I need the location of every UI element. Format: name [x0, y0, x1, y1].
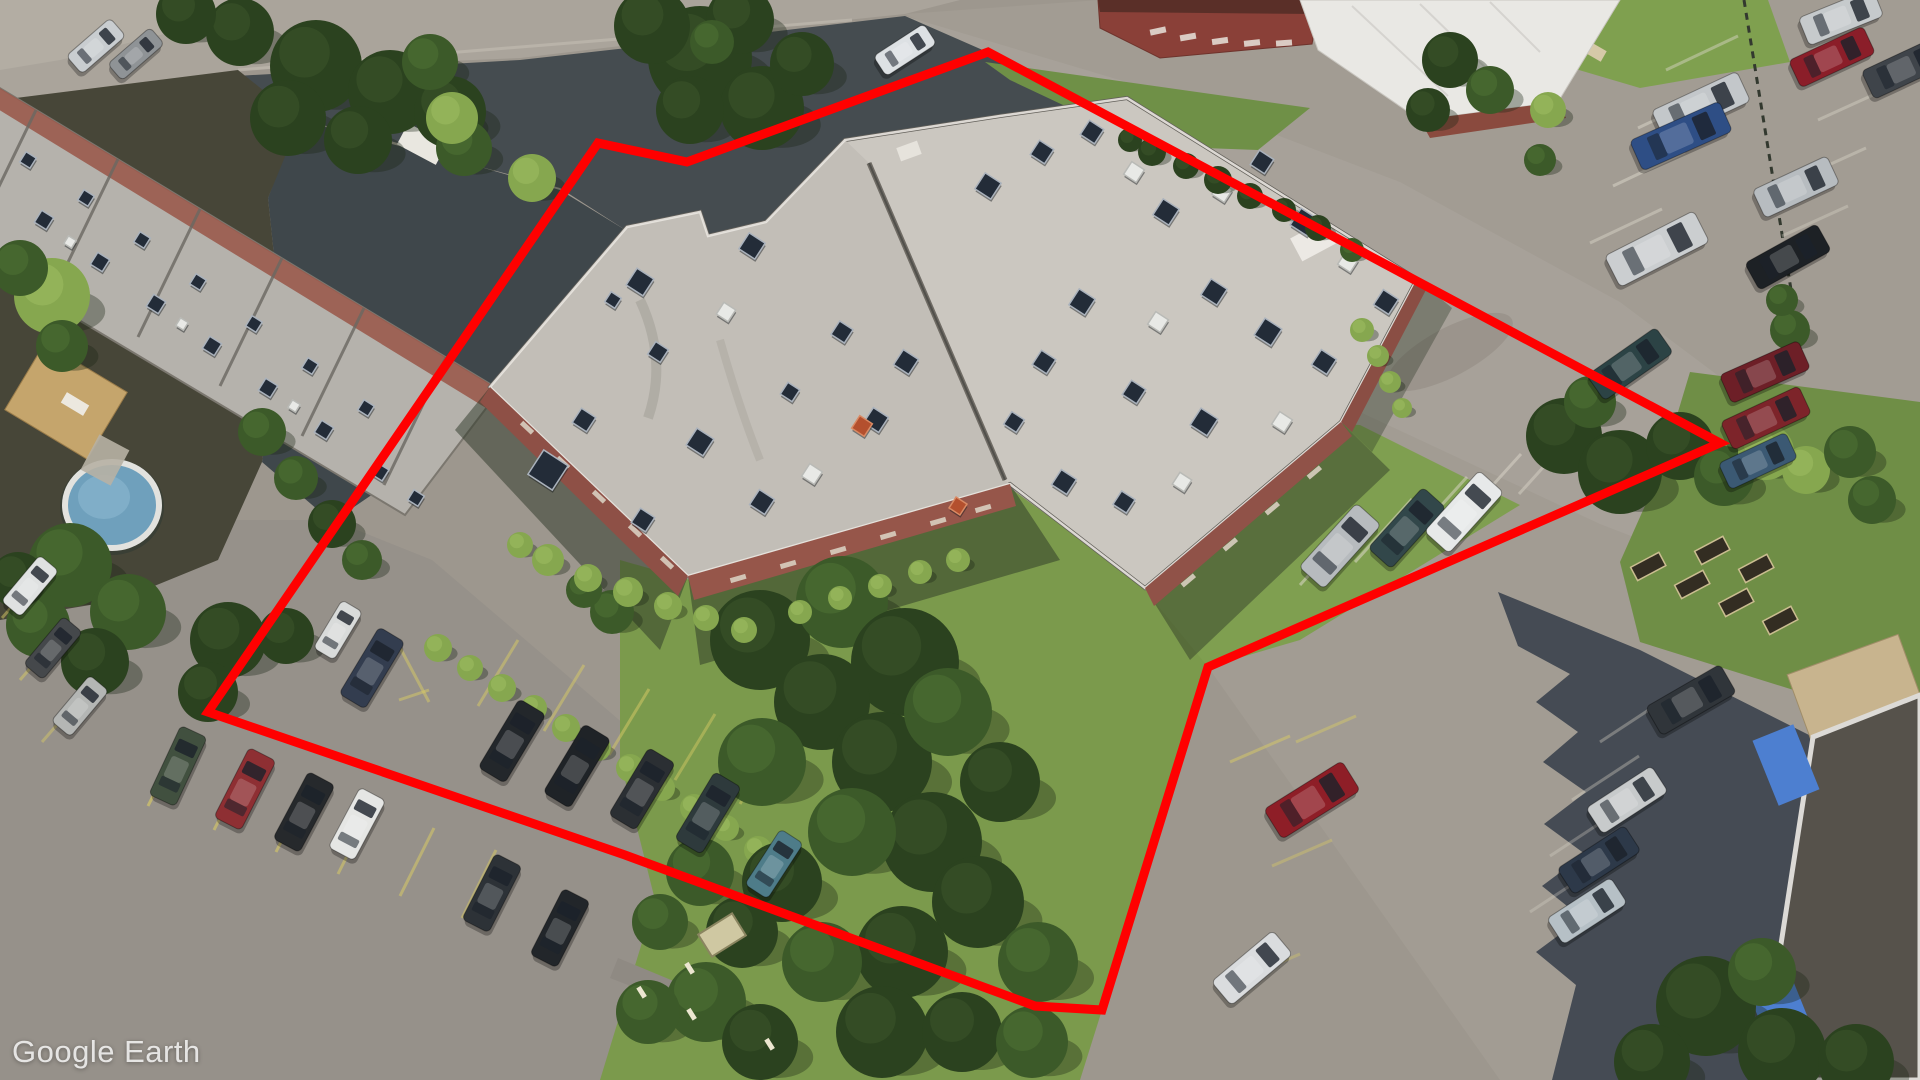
google-earth-watermark: Google Earth	[12, 1034, 201, 1070]
google-earth-viewport: Google Earth	[0, 0, 1920, 1080]
aerial-imagery	[0, 0, 1920, 1080]
